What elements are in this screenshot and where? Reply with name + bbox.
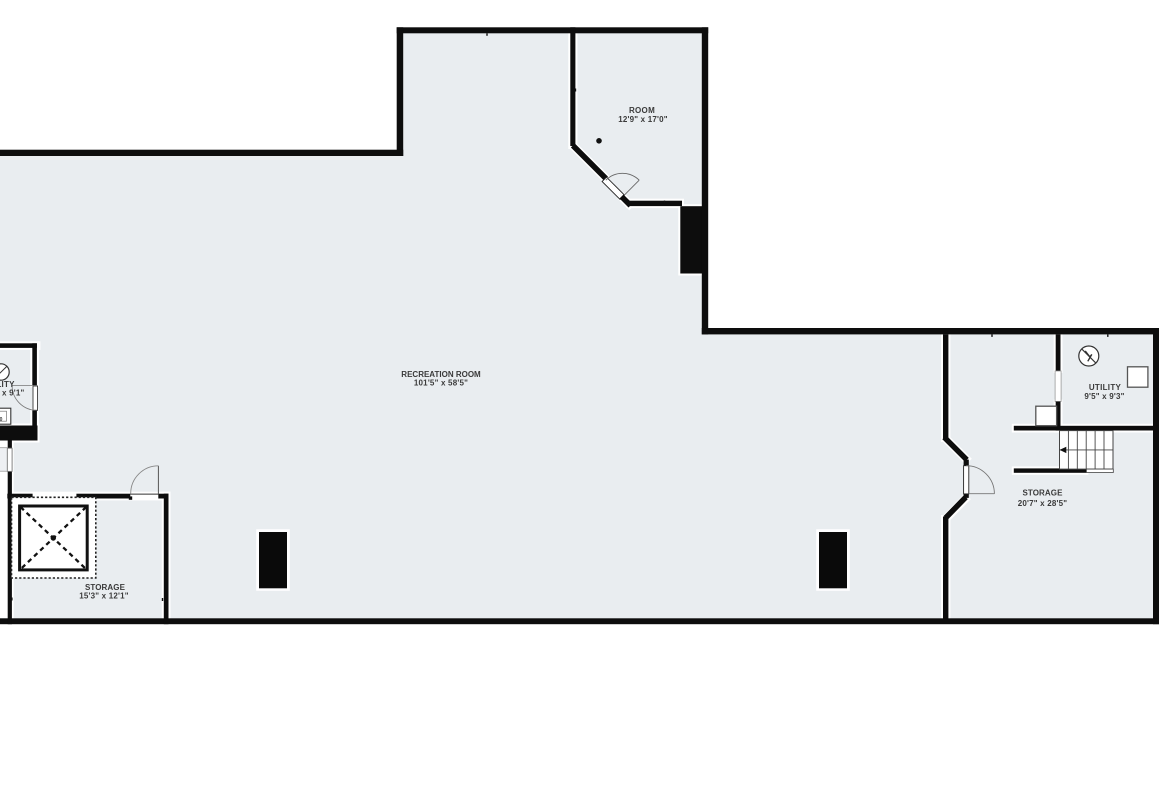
svg-text:ROOM: ROOM	[629, 106, 655, 115]
svg-text:20'7" x 28'5": 20'7" x 28'5"	[1018, 499, 1068, 508]
svg-text:101'5" x 58'5": 101'5" x 58'5"	[414, 379, 468, 388]
svg-text:STORAGE: STORAGE	[1022, 489, 1063, 498]
svg-text:x 9'1": x 9'1"	[2, 389, 24, 398]
svg-text:15'3" x 12'1": 15'3" x 12'1"	[79, 592, 129, 601]
svg-text:0: 0	[0, 417, 3, 423]
svg-text:9'5" x 9'3": 9'5" x 9'3"	[1084, 392, 1124, 401]
svg-text:UTILITY: UTILITY	[1089, 383, 1122, 392]
svg-text:12'9" x 17'0": 12'9" x 17'0"	[618, 115, 668, 124]
